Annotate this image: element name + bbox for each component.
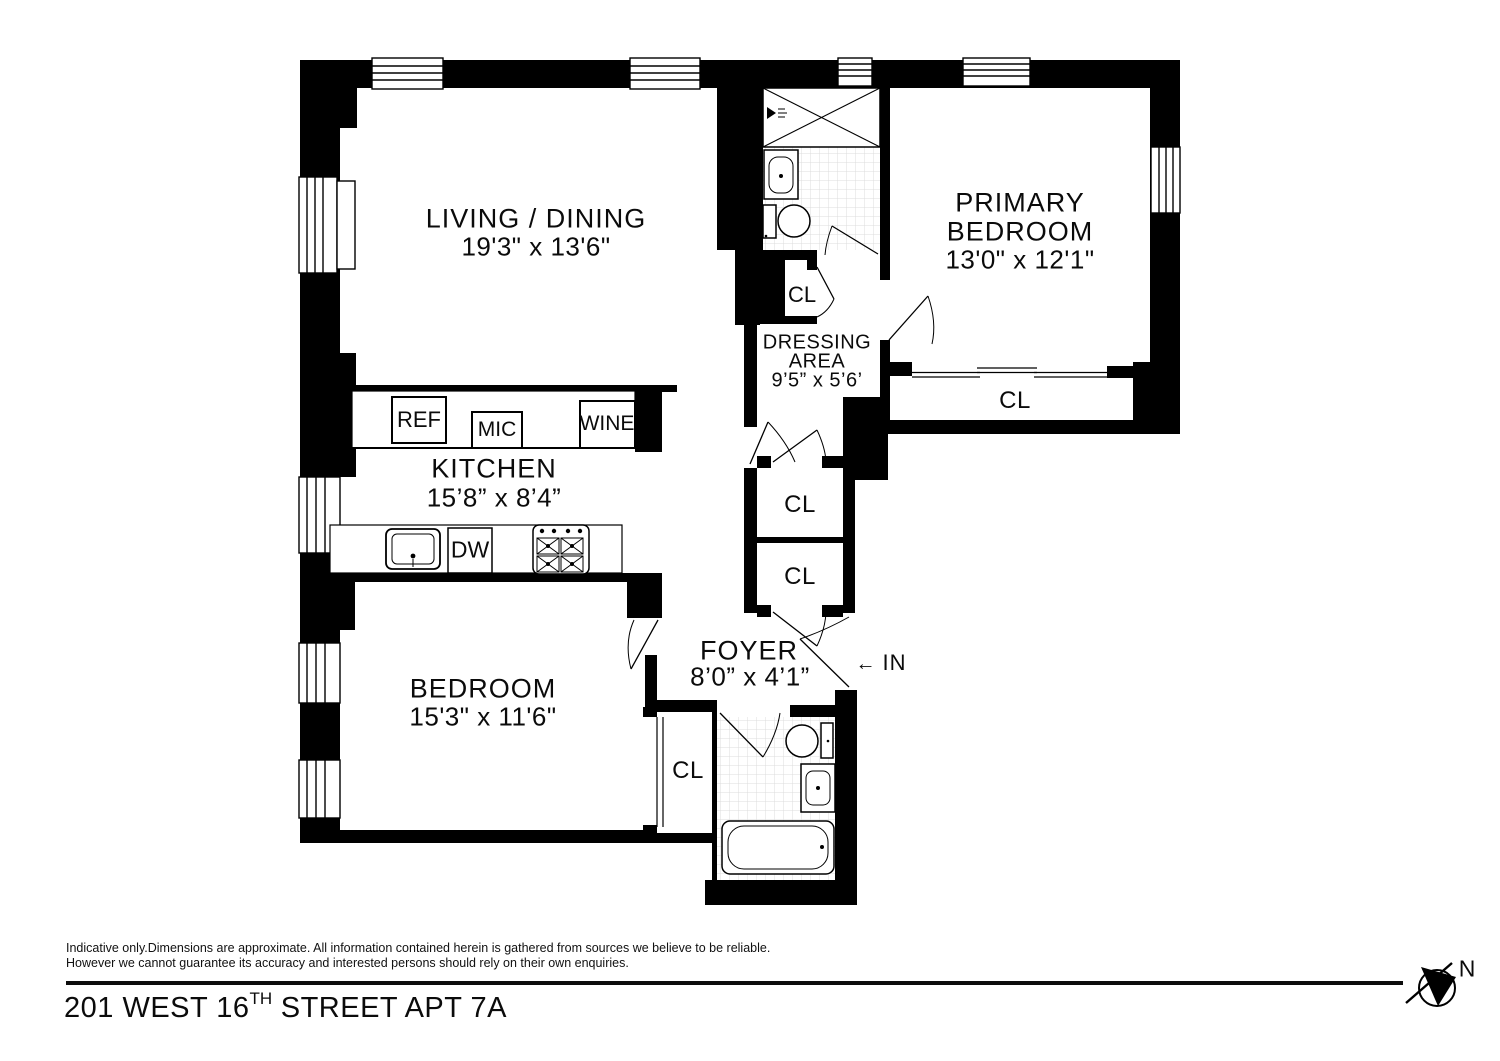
compass-north-label: N — [1459, 956, 1476, 983]
entrance-arrow-icon: ← — [856, 653, 877, 675]
page-title: 201 WEST 16TH STREET APT 7A — [64, 989, 507, 1025]
dressing-area-dims: 9’5” x 5’6’ — [771, 370, 862, 393]
window-icon — [299, 177, 355, 273]
door-arc — [889, 296, 934, 344]
entrance-text: IN — [883, 650, 907, 675]
refrigerator-label: REF — [397, 407, 441, 433]
bedroom-dims: 15'3" x 11'6" — [409, 702, 556, 733]
door-arc — [817, 267, 834, 317]
primary-bedroom-label-1: PRIMARY — [955, 188, 1085, 219]
shower-icon — [763, 88, 880, 147]
foyer-dims: 8’0” x 4’1” — [690, 662, 810, 693]
living-room-dims: 19'3" x 13'6" — [461, 232, 610, 263]
primary-bedroom-label-2: BEDROOM — [947, 217, 1094, 248]
primary-bedroom-dims: 13'0" x 12'1" — [945, 245, 1094, 276]
window-icon — [372, 58, 443, 89]
living-room-label: LIVING / DINING — [426, 204, 647, 235]
window-icon — [299, 643, 340, 703]
sink-icon — [764, 150, 798, 199]
window-icon — [630, 58, 700, 89]
title-rest: STREET APT 7A — [272, 992, 507, 1024]
door-arc — [773, 430, 826, 462]
entrance-label: ←IN — [856, 650, 907, 676]
sink-icon — [801, 764, 835, 812]
disclaimer-line-2: However we cannot guarantee its accuracy… — [66, 956, 629, 971]
title-superscript: TH — [250, 989, 273, 1008]
title-main: 201 WEST 16 — [64, 992, 250, 1024]
closet-label-bath-hall: CL — [788, 282, 816, 308]
window-icon — [838, 58, 872, 86]
kitchen-dims: 15’8” x 8’4” — [427, 483, 562, 514]
window-icon — [963, 58, 1030, 86]
footer-divider — [66, 981, 1403, 985]
toilet-icon — [763, 205, 810, 238]
closet-label-primary: CL — [999, 387, 1031, 415]
closet-label-hall-lower: CL — [784, 563, 816, 591]
stove-icon — [533, 525, 589, 574]
closet-label-hall-upper: CL — [784, 491, 816, 519]
window-icon — [299, 760, 340, 818]
toilet-icon — [786, 723, 833, 758]
bathroom-top — [763, 88, 880, 250]
window-icon — [1151, 147, 1180, 213]
floor-plan-graphic — [0, 0, 1500, 1061]
bathroom-bottom — [717, 717, 835, 880]
bathtub-icon — [722, 821, 834, 874]
compass-icon — [1406, 963, 1456, 1006]
wine-cooler-label: WINE — [580, 412, 635, 436]
bedroom-label: BEDROOM — [410, 674, 557, 705]
kitchen-label: KITCHEN — [431, 454, 557, 485]
sliding-door-icon — [657, 717, 663, 827]
microwave-label: MIC — [478, 418, 517, 442]
kitchen-sink-icon — [386, 529, 440, 569]
floor-plan-page: LIVING / DINING 19'3" x 13'6" PRIMARY BE… — [0, 0, 1500, 1061]
door-arc — [750, 422, 795, 464]
disclaimer-line-1: Indicative only.Dimensions are approxima… — [66, 941, 770, 956]
sliding-door-icon — [912, 368, 1108, 377]
closet-label-bedroom: CL — [672, 757, 704, 785]
dishwasher-label: DW — [451, 537, 489, 564]
